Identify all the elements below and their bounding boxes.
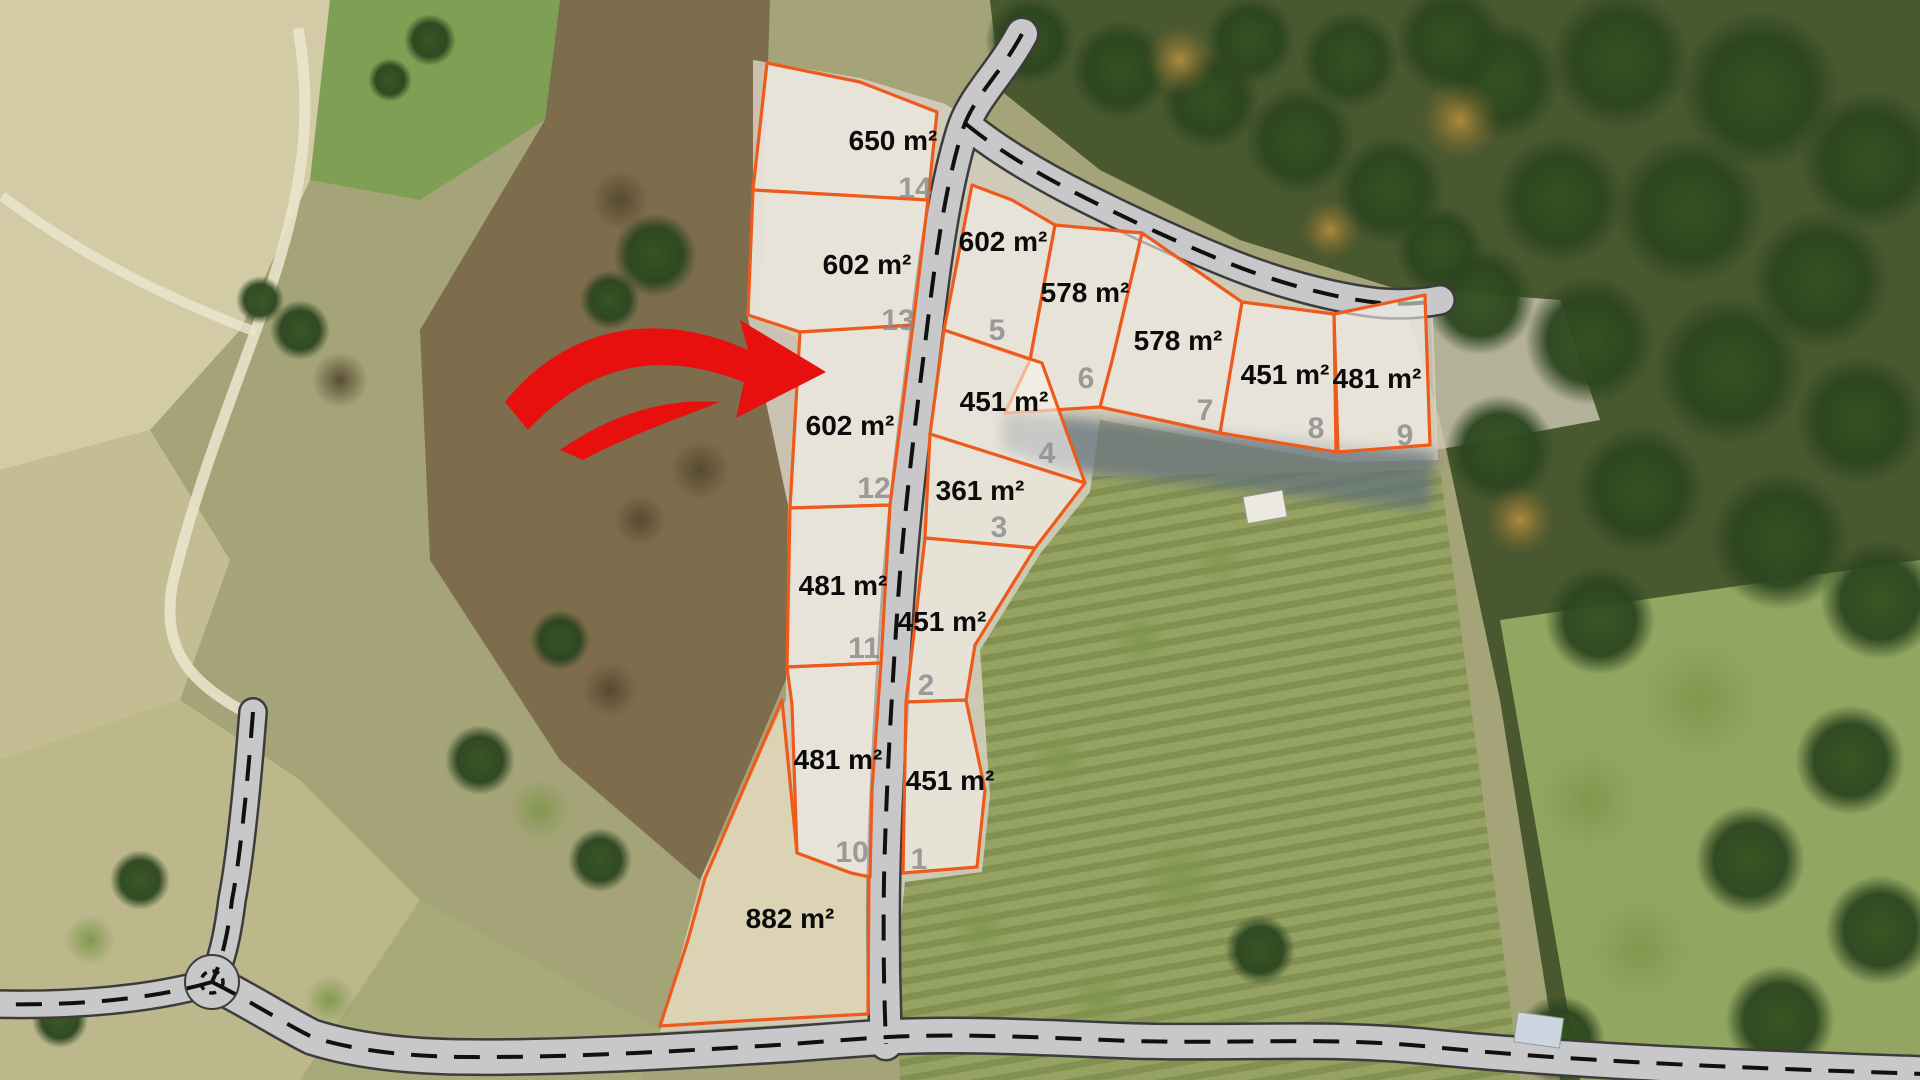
parcel-number: 13 [881, 304, 914, 337]
tree-icon [64, 914, 116, 966]
parcel-number: 1 [911, 843, 928, 876]
tree-icon [530, 610, 590, 670]
parcel-area-label: 451 m² [960, 386, 1049, 417]
tree-icon [1795, 355, 1920, 485]
parcel-number: 11 [848, 632, 880, 665]
tree-icon [954, 904, 1006, 956]
tree-icon [670, 440, 730, 500]
parcel-area-label: 578 m² [1041, 277, 1130, 308]
tree-icon [1575, 425, 1705, 555]
tree-icon [1615, 135, 1765, 285]
tree-icon [312, 352, 368, 408]
tree-icon [236, 276, 284, 324]
aerial-parcel-map: 650 m²14602 m²13602 m²12481 m²11481 m²10… [0, 0, 1920, 1080]
parcel-number: 5 [989, 314, 1006, 347]
tree-icon [110, 850, 170, 910]
tree-icon [1640, 640, 1760, 760]
tree-icon [1540, 750, 1640, 850]
tree-icon [1032, 732, 1088, 788]
tree-icon [1445, 395, 1555, 505]
tree-icon [1485, 485, 1555, 555]
tree-icon [1196, 536, 1244, 584]
parcel-area-label: 451 m² [1241, 359, 1330, 390]
parcel-area-label: 882 m² [746, 903, 835, 934]
tree-icon [1395, 205, 1485, 295]
parcel-number: 7 [1197, 394, 1214, 427]
tree-icon [1590, 900, 1690, 1000]
tree-icon [1145, 25, 1215, 95]
tree-icon [368, 58, 412, 102]
parcel-area-label: 602 m² [823, 249, 912, 280]
parcel-area-label: 451 m² [898, 606, 987, 637]
parcel-area-label: 602 m² [959, 226, 1048, 257]
parcel-number: 9 [1397, 419, 1414, 452]
tree-icon [1225, 915, 1295, 985]
tree-icon [1655, 295, 1805, 445]
parcel-number: 6 [1078, 362, 1095, 395]
tree-icon [1495, 135, 1625, 265]
parcel-number: 14 [898, 172, 932, 205]
tree-icon [614, 494, 666, 546]
tree-icon [1525, 275, 1655, 405]
parcel-number: 8 [1308, 412, 1325, 445]
parcel-area-label: 361 m² [936, 475, 1025, 506]
tree-icon [568, 828, 632, 892]
parcel-number: 10 [835, 836, 868, 869]
parcel-number: 12 [857, 472, 890, 505]
tree-icon [1795, 705, 1905, 815]
parcel-area-label: 451 m² [906, 765, 995, 796]
map-scene: 650 m²14602 m²13602 m²12481 m²11481 m²10… [0, 0, 1920, 1080]
tree-icon [580, 270, 640, 330]
parcel-area-label: 578 m² [1134, 325, 1223, 356]
tree-icon [404, 14, 456, 66]
parcel-area-label: 481 m² [799, 570, 888, 601]
building [1514, 1012, 1564, 1048]
tree-icon [1695, 805, 1805, 915]
parcel-number: 2 [918, 669, 935, 702]
parcel-area-label: 602 m² [806, 410, 895, 441]
parcel-area-label: 481 m² [794, 744, 883, 775]
tree-icon [1300, 10, 1400, 110]
tree-icon [445, 725, 515, 795]
parcel-area-label: 650 m² [849, 125, 938, 156]
tree-icon [590, 170, 650, 230]
tree-icon [510, 780, 570, 840]
parcel-number: 4 [1039, 437, 1056, 470]
tree-icon [1420, 80, 1500, 160]
tree-icon [582, 662, 638, 718]
tree-icon [1140, 840, 1220, 920]
tree-icon [1545, 565, 1655, 675]
parcel-area-label: 481 m² [1333, 363, 1422, 394]
tree-icon [1300, 200, 1360, 260]
tree-icon [1114, 614, 1166, 666]
parcel-number: 3 [991, 511, 1008, 544]
